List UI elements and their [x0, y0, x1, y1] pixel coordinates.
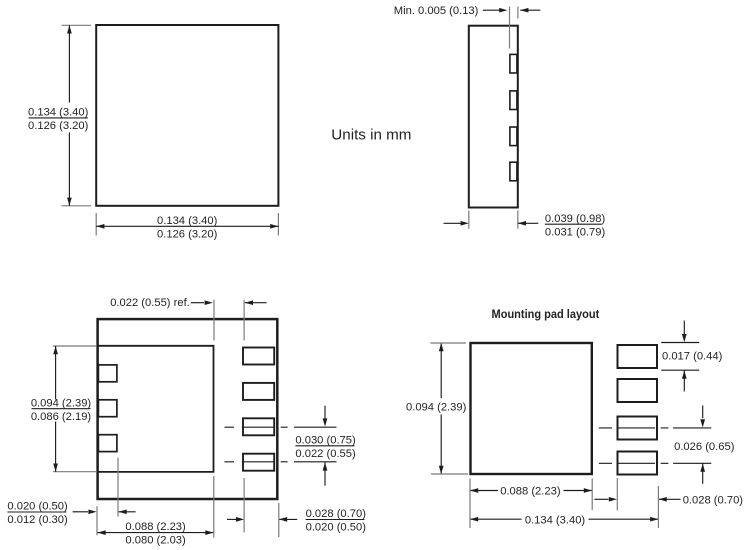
svg-text:0.134 (3.40): 0.134 (3.40) [157, 215, 218, 227]
svg-text:0.030 (0.75): 0.030 (0.75) [295, 434, 356, 446]
svg-text:0.028 (0.70): 0.028 (0.70) [683, 494, 744, 506]
svg-text:0.022 (0.55): 0.022 (0.55) [295, 448, 356, 460]
svg-text:0.020 (0.50): 0.020 (0.50) [306, 522, 367, 534]
svg-text:0.088 (2.23): 0.088 (2.23) [125, 521, 186, 533]
svg-text:0.134 (3.40): 0.134 (3.40) [28, 107, 89, 119]
svg-text:Mounting pad layout: Mounting pad layout [492, 309, 600, 321]
svg-text:0.017 (0.44): 0.017 (0.44) [662, 351, 723, 363]
svg-text:0.028 (0.70): 0.028 (0.70) [306, 508, 367, 520]
svg-text:0.134 (3.40): 0.134 (3.40) [525, 514, 586, 526]
svg-text:0.086 (2.19): 0.086 (2.19) [31, 411, 92, 423]
svg-text:Min. 0.005 (0.13): Min. 0.005 (0.13) [394, 5, 479, 17]
svg-text:0.088 (2.23): 0.088 (2.23) [500, 486, 561, 498]
svg-text:0.026 (0.65): 0.026 (0.65) [674, 441, 735, 453]
svg-text:0.080 (2.03): 0.080 (2.03) [125, 535, 186, 547]
svg-text:0.094 (2.39): 0.094 (2.39) [406, 401, 467, 413]
svg-text:0.031 (0.79): 0.031 (0.79) [545, 226, 606, 238]
svg-text:0.094 (2.39): 0.094 (2.39) [31, 397, 92, 409]
svg-text:0.012 (0.30): 0.012 (0.30) [7, 514, 68, 526]
svg-text:0.039 (0.98): 0.039 (0.98) [545, 213, 606, 225]
svg-text:0.126 (3.20): 0.126 (3.20) [28, 120, 89, 132]
svg-text:0.022 (0.55) ref.: 0.022 (0.55) ref. [110, 297, 190, 309]
svg-text:0.020 (0.50): 0.020 (0.50) [7, 501, 68, 513]
svg-text:0.126 (3.20): 0.126 (3.20) [157, 228, 218, 240]
svg-text:Units in mm: Units in mm [331, 127, 411, 144]
